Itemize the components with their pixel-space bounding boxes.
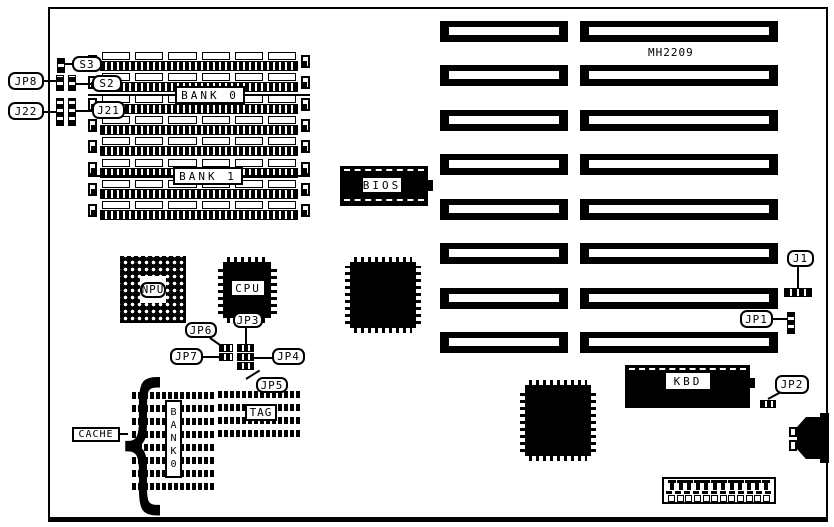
isa-slot-key (589, 27, 769, 35)
simm-chip (268, 180, 296, 188)
simm-chip (202, 116, 230, 124)
power-pin-stem (730, 483, 734, 490)
simm-hook-left (88, 183, 97, 196)
isa-slot (580, 65, 778, 86)
power-cell (694, 495, 701, 502)
simm-chip (135, 137, 163, 145)
simm-hook-left (88, 162, 97, 175)
npu-label: NPU (140, 282, 167, 298)
bank1-label: BANK 1 (173, 167, 243, 185)
isa-slot (580, 199, 778, 220)
simm-chip (102, 201, 130, 209)
s2-line (76, 83, 93, 85)
power-pin (711, 480, 719, 490)
power-pin (745, 480, 753, 490)
jp7-line (202, 356, 220, 358)
isa-slot (440, 110, 568, 131)
power-pin (753, 480, 761, 490)
motherboard-diagram: BANK 0 BANK 1 JP8 J22 S3 S2 J21 MH2209 B… (0, 0, 834, 527)
power-connector (662, 477, 776, 504)
din-pin-2 (789, 440, 797, 451)
power-pin-stem (713, 483, 717, 490)
simm-chip (268, 116, 296, 124)
simm-pin-strip (100, 125, 298, 135)
npu-socket-center: NPU (140, 276, 166, 303)
j21-jumper (68, 98, 76, 126)
simm-chip (168, 52, 196, 60)
power-pin (694, 480, 702, 490)
simm-chip (102, 180, 130, 188)
j22-label: J22 (8, 102, 44, 120)
power-divider (666, 491, 772, 494)
isa-slot-key (589, 249, 769, 257)
simm-hook-right (301, 55, 310, 68)
j1-jumper (784, 288, 812, 297)
power-cell (728, 495, 735, 502)
simm-chip-row (102, 116, 296, 124)
jp2-label: JP2 (775, 375, 809, 394)
jp7-jumper (219, 353, 233, 361)
simm-hook-left (88, 140, 97, 153)
bios-pin-row-top (344, 169, 424, 171)
isa-slot-key (589, 294, 769, 302)
jp6-jumper (219, 344, 233, 352)
cpu-label: CPU (231, 280, 265, 296)
simm-chip (168, 116, 196, 124)
isa-slot-key (449, 27, 559, 35)
power-pin-stem (764, 483, 768, 490)
memory-bank-area (88, 52, 310, 224)
power-cell (685, 495, 692, 502)
jp4-line (254, 357, 273, 359)
simm-chip (235, 73, 263, 81)
jp5-label: JP5 (256, 377, 288, 393)
isa-slot-key (449, 116, 559, 124)
power-pin (719, 480, 727, 490)
power-cell (746, 495, 753, 502)
simm-pin-strip (100, 104, 298, 114)
power-pin-stem (721, 483, 725, 490)
simm-chip (135, 116, 163, 124)
power-cell (763, 495, 770, 502)
cpu-leads-right (271, 266, 277, 314)
simm-pin-strip (100, 146, 298, 156)
cache-label: CACHE (72, 427, 120, 442)
power-cell (737, 495, 744, 502)
jp1-label: JP1 (740, 310, 773, 328)
power-cell (703, 495, 710, 502)
isa-slot (440, 199, 568, 220)
simm-chip-row (102, 201, 296, 209)
simm-chip (268, 137, 296, 145)
power-cell (754, 495, 761, 502)
isa-slot (440, 65, 568, 86)
simm-hook-left (88, 119, 97, 132)
isa-slot-key (449, 205, 559, 213)
simm-chip (268, 95, 296, 103)
jp1-jumper (787, 312, 795, 334)
simm-chip (268, 73, 296, 81)
simm-hook-left (88, 204, 97, 217)
jp2-jumper (760, 400, 776, 408)
isa-slot-key (589, 205, 769, 213)
simm-hook-right (301, 140, 310, 153)
simm-chip (135, 159, 163, 167)
jp7-label: JP7 (170, 348, 203, 365)
simm-chip (168, 159, 196, 167)
power-pin-stem (738, 483, 742, 490)
isa-slot (580, 288, 778, 309)
jp4-label: JP4 (272, 348, 305, 365)
power-pin (736, 480, 744, 490)
isa-slot (440, 243, 568, 264)
power-pin-stem (687, 483, 691, 490)
power-pin (702, 480, 710, 490)
power-cell (677, 495, 684, 502)
simm-chip-row (102, 137, 296, 145)
simm-chip (168, 73, 196, 81)
power-pin (762, 480, 770, 490)
isa-slot (580, 243, 778, 264)
jp1-line (772, 318, 788, 320)
din-pin-1 (789, 427, 797, 437)
simm-hook-right (301, 119, 310, 132)
isa-slot-key (589, 338, 769, 346)
jp4-jumper (237, 353, 254, 361)
power-pin-row (668, 480, 770, 490)
s2-jumper (68, 75, 76, 91)
j21-label: J21 (92, 101, 125, 119)
s2-label: S2 (92, 75, 122, 92)
simm-chip (202, 201, 230, 209)
simm-slot (88, 116, 310, 136)
simm-chip (135, 95, 163, 103)
bios-notch (428, 180, 433, 191)
isa-slot (580, 110, 778, 131)
simm-chip (135, 52, 163, 60)
simm-chip (202, 137, 230, 145)
simm-hook-right (301, 76, 310, 89)
isa-slot (440, 21, 568, 42)
simm-chip-row (102, 52, 296, 60)
cache-tag-label: TAG (245, 404, 277, 421)
power-pin-stem (696, 483, 700, 490)
simm-chip (135, 73, 163, 81)
simm-chip (102, 52, 130, 60)
simm-chip (268, 159, 296, 167)
isa-slot (440, 288, 568, 309)
power-cell-row (668, 495, 770, 503)
jp3-line (245, 326, 247, 346)
cache-brace: { (114, 384, 171, 496)
qfp-bottom-body (525, 385, 591, 456)
isa-slot (440, 332, 568, 353)
simm-pin-strip (100, 61, 298, 71)
power-pin (685, 480, 693, 490)
simm-chip (168, 201, 196, 209)
kbd-pin-row-top (629, 368, 746, 370)
jp5-jumper (237, 362, 254, 370)
power-pin (677, 480, 685, 490)
simm-slot (88, 201, 310, 221)
simm-chip (268, 201, 296, 209)
isa-slot (580, 21, 778, 42)
simm-chip (235, 52, 263, 60)
jp8-label: JP8 (8, 72, 44, 90)
power-cell (711, 495, 718, 502)
kbd-notch (750, 378, 755, 388)
simm-chip (235, 116, 263, 124)
simm-chip (268, 52, 296, 60)
simm-chip (168, 137, 196, 145)
power-cell (668, 495, 675, 502)
npu-socket: NPU (120, 256, 186, 323)
bank0-label: BANK 0 (175, 86, 245, 104)
simm-chip (202, 159, 230, 167)
simm-chip-row (102, 159, 296, 167)
s3-jumper (57, 58, 65, 73)
power-pin (728, 480, 736, 490)
simm-chip (235, 137, 263, 145)
isa-slot (440, 154, 568, 175)
power-pin-stem (679, 483, 683, 490)
simm-chip (135, 201, 163, 209)
power-pin-stem (755, 483, 759, 490)
power-pin-stem (670, 483, 674, 490)
simm-hook-right (301, 183, 310, 196)
power-pin-stem (704, 483, 708, 490)
simm-hook-right (301, 204, 310, 217)
j21-line (76, 110, 93, 112)
simm-chip (135, 180, 163, 188)
simm-hook-right (301, 162, 310, 175)
simm-chip (202, 73, 230, 81)
j1-label: J1 (787, 250, 814, 267)
s3-label: S3 (72, 56, 102, 72)
simm-chip (102, 159, 130, 167)
power-cell (720, 495, 727, 502)
jp6-label: JP6 (185, 322, 217, 338)
jp3-label: JP3 (233, 312, 263, 328)
simm-chip (235, 201, 263, 209)
simm-pin-strip (100, 210, 298, 220)
simm-hook-right (301, 98, 310, 111)
j22-jumper (56, 98, 64, 126)
simm-slot (88, 137, 310, 157)
power-pin-stem (747, 483, 751, 490)
simm-chip (235, 159, 263, 167)
j1-line (797, 267, 799, 288)
simm-chip (102, 137, 130, 145)
bios-label: BIOS (362, 177, 402, 193)
jp3-jumper (237, 344, 254, 352)
isa-slot-key (589, 116, 769, 124)
isa-slot-key (449, 338, 559, 346)
cache-bank0-label: BANK0 (165, 400, 182, 478)
power-pin (668, 480, 676, 490)
isa-slot (580, 332, 778, 353)
isa-slot-key (589, 160, 769, 168)
qfp-center-body (350, 262, 416, 328)
simm-chip-row (102, 73, 296, 81)
simm-chip (202, 52, 230, 60)
jp8-jumper (56, 75, 64, 91)
isa-slot-key (449, 160, 559, 168)
isa-slot (580, 154, 778, 175)
simm-pin-strip (100, 189, 298, 199)
isa-slot-key (449, 294, 559, 302)
isa-slot-key (449, 249, 559, 257)
kbd-label: KBD (665, 372, 711, 390)
simm-slot (88, 52, 310, 72)
bios-pin-row-bottom (344, 199, 424, 201)
isa-slot-key (589, 71, 769, 79)
isa-slot-key (449, 71, 559, 79)
model-number: MH2209 (648, 46, 694, 59)
